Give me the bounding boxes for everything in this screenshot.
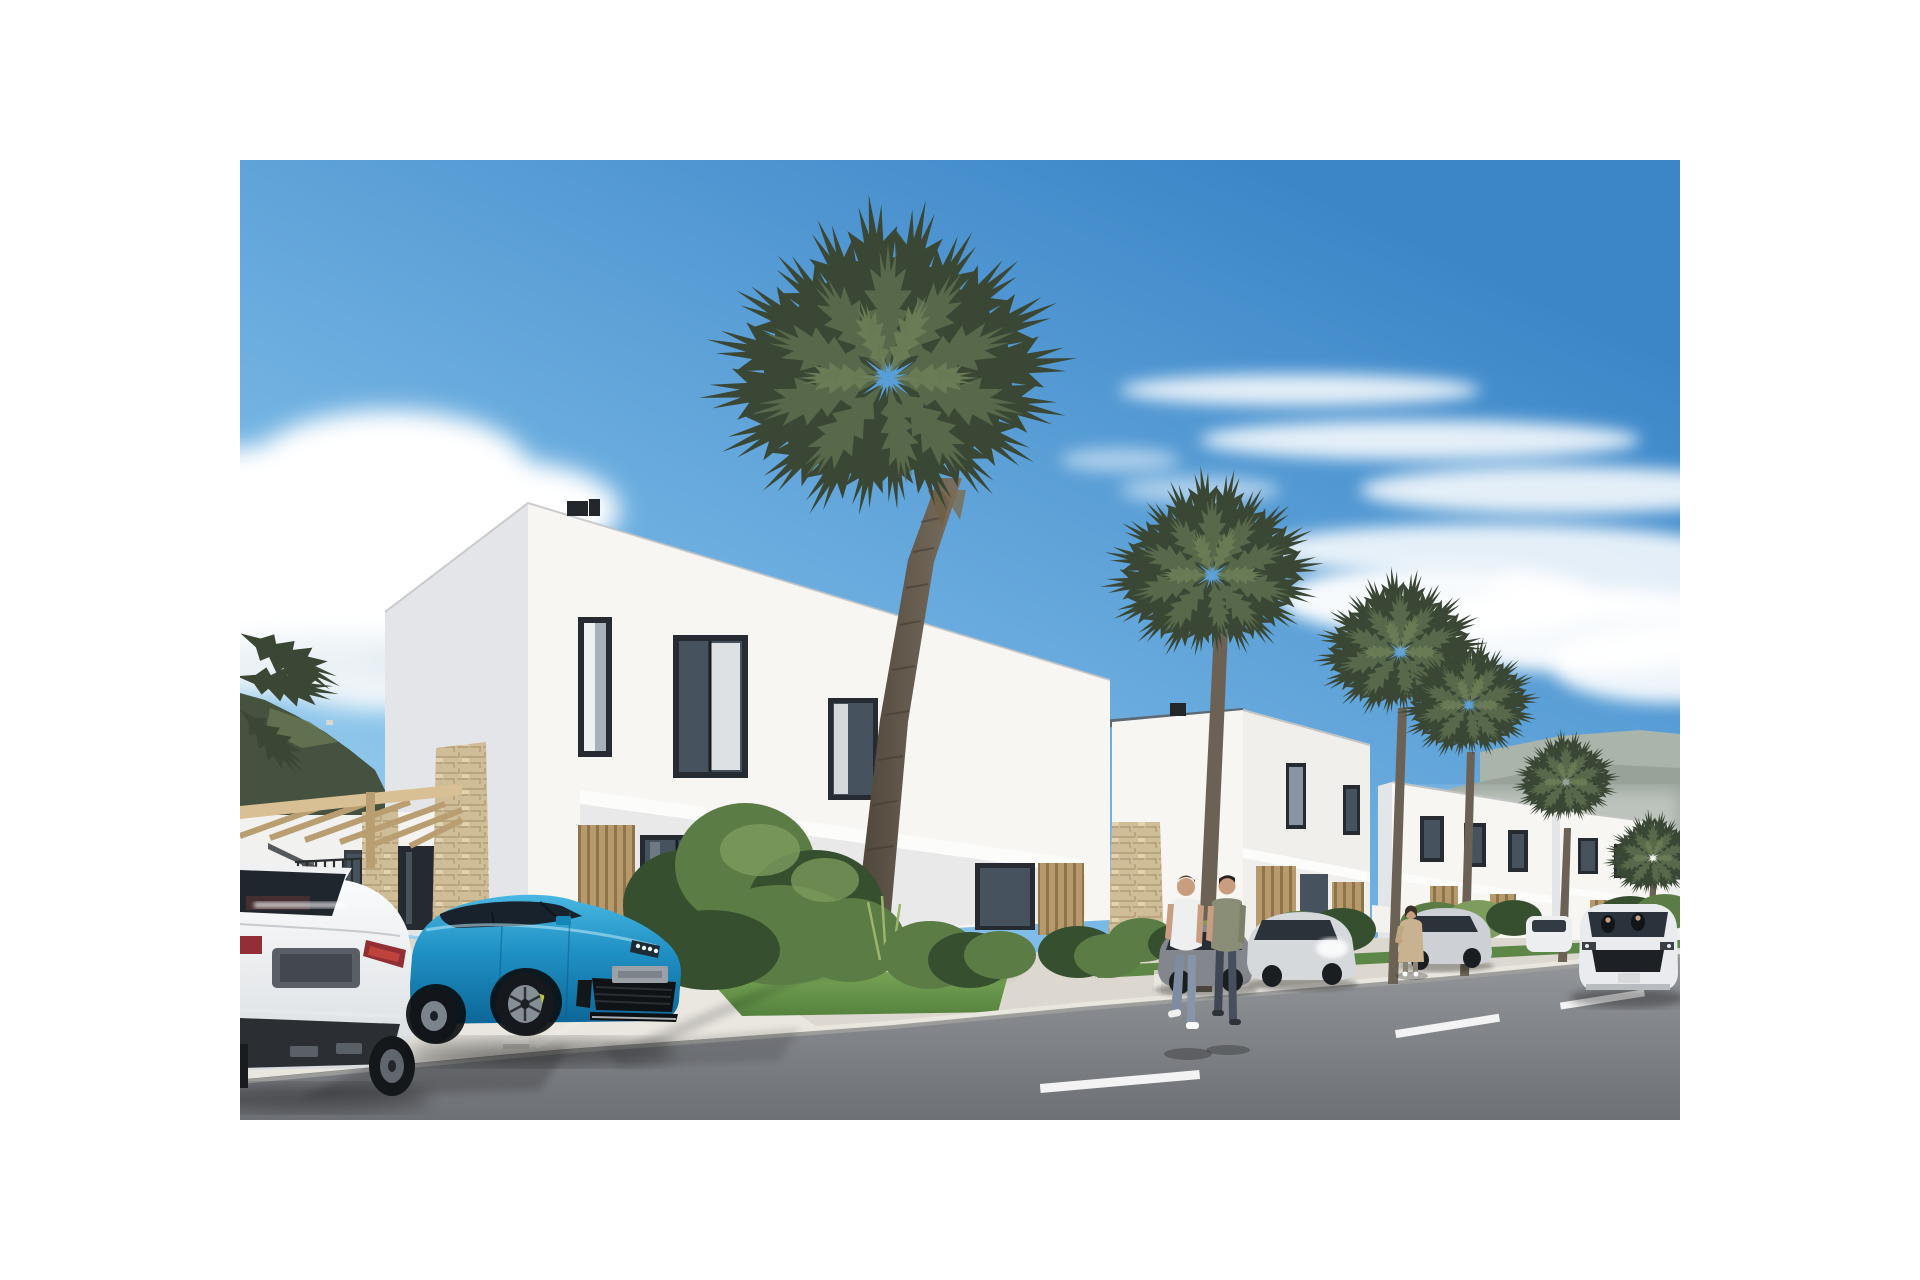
wood-slat-panel-right xyxy=(1038,863,1084,935)
suv-plate xyxy=(1618,973,1640,983)
roof-vent xyxy=(1170,703,1186,716)
entry-glass-door xyxy=(398,846,434,930)
render-scene xyxy=(240,160,1680,1120)
glass-door-right xyxy=(975,863,1035,930)
license-plate xyxy=(280,954,352,982)
taillight-left xyxy=(240,936,262,954)
roof-vents xyxy=(567,499,600,516)
suv-grille xyxy=(1592,950,1664,972)
side-mirror xyxy=(556,916,571,925)
pergola-post xyxy=(366,792,375,868)
distant-building-speck xyxy=(326,720,333,725)
property-render-photo xyxy=(240,160,1680,1120)
parked-white-compact xyxy=(1526,916,1572,952)
page xyxy=(0,0,1920,1280)
driving-white-suv xyxy=(1570,904,1680,1008)
window-upper-right xyxy=(828,698,878,800)
parked-silver-sedan xyxy=(1246,912,1358,991)
window-upper-center xyxy=(673,635,748,778)
corner-window xyxy=(578,617,612,757)
